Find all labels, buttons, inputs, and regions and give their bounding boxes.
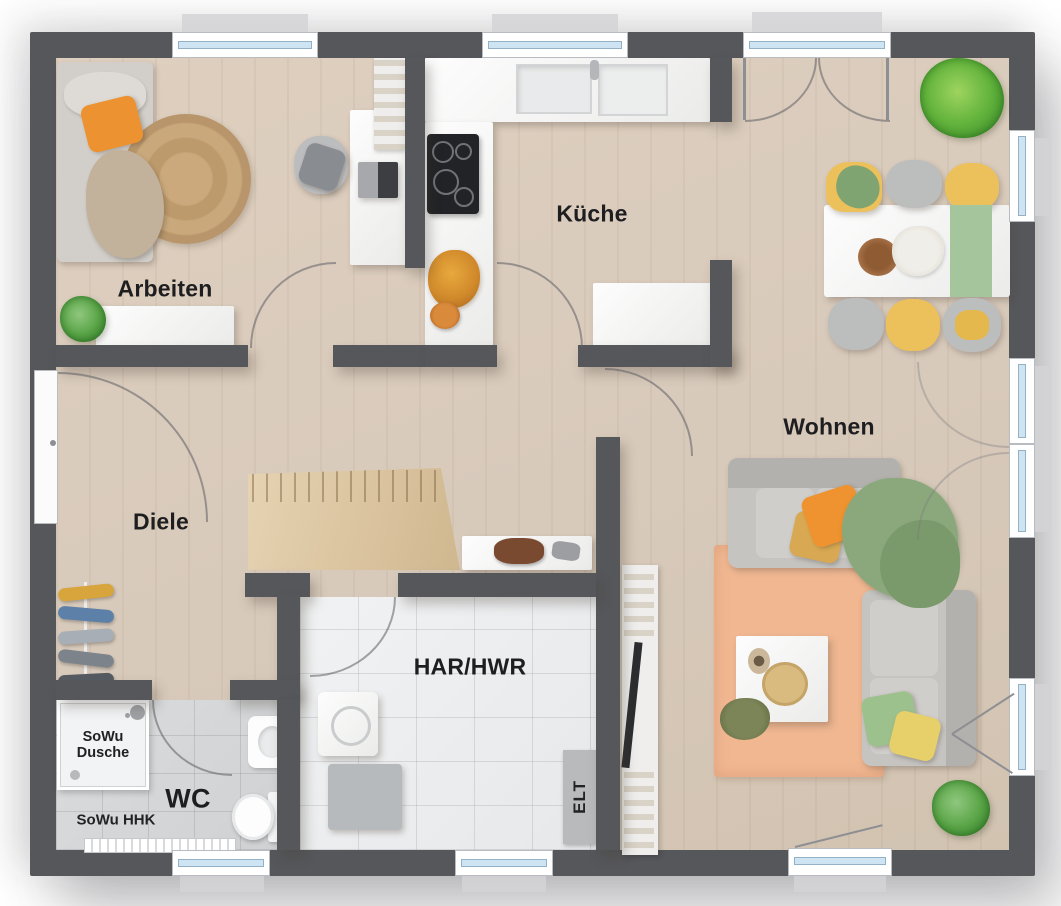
- toilet-bowl: [232, 794, 274, 840]
- window-sill: [492, 14, 618, 32]
- stair-treads: [252, 470, 450, 502]
- dining-chair: [886, 160, 942, 208]
- elt-label: ELT: [570, 780, 590, 814]
- wall: [405, 58, 425, 268]
- burner: [455, 143, 472, 160]
- wall: [56, 680, 152, 700]
- books-stack: [624, 570, 654, 636]
- appliance-box: [328, 764, 402, 830]
- wall: [578, 345, 732, 367]
- shower-drain: [70, 770, 80, 780]
- palm-plant: [920, 58, 1004, 138]
- terrace-door: [788, 848, 892, 876]
- shower-head: [130, 705, 145, 720]
- room-label-diele: Diele: [133, 509, 189, 536]
- room-label-har-hwr: HAR/HWR: [414, 654, 527, 681]
- candle: [748, 648, 770, 674]
- fruit-bowl: [430, 302, 460, 329]
- window: [172, 32, 318, 58]
- burner: [454, 187, 474, 207]
- potted-plant: [60, 296, 106, 342]
- front-door: [34, 370, 58, 524]
- window-sill: [462, 876, 546, 892]
- wall: [277, 700, 300, 850]
- window-sill: [180, 876, 264, 892]
- washing-machine-door: [331, 706, 371, 746]
- burner: [432, 141, 454, 163]
- wall: [425, 345, 497, 367]
- staircase: [248, 468, 460, 570]
- dining-chair: [945, 163, 999, 211]
- bag: [494, 538, 544, 564]
- chair-seat-cushion: [955, 310, 989, 340]
- wall: [333, 345, 425, 367]
- faucet: [590, 60, 599, 80]
- french-door-threshold: [743, 32, 891, 58]
- wall: [398, 573, 596, 597]
- wall: [245, 573, 310, 597]
- room-label-wohnen: Wohnen: [783, 414, 874, 441]
- window-sill: [1035, 366, 1049, 532]
- room-label-wc: WC: [165, 784, 210, 815]
- room-label-arbeiten: Arbeiten: [118, 276, 213, 303]
- sideboard: [96, 306, 234, 346]
- sink-basin: [598, 64, 668, 116]
- wall: [230, 680, 300, 700]
- window-sill: [182, 14, 308, 32]
- cooktop: [427, 134, 479, 214]
- sowu-dusche-label-line1: SoWu: [83, 729, 124, 745]
- window: [455, 850, 553, 876]
- wall: [56, 345, 248, 367]
- wall: [710, 58, 732, 122]
- door-handle: [50, 440, 56, 446]
- sowu-dusche-label-line2: Dusche: [77, 745, 129, 761]
- window: [1009, 130, 1035, 222]
- window-sill: [794, 876, 886, 892]
- sowu-hhk-label: SoWu HHK: [77, 812, 156, 829]
- table-runner: [950, 205, 992, 297]
- sofa-cushion: [870, 600, 938, 676]
- window: [1009, 358, 1035, 444]
- window: [1009, 444, 1035, 538]
- kitchen-peninsula: [593, 283, 715, 347]
- wall: [596, 437, 620, 850]
- window-sill: [1035, 684, 1049, 770]
- small-plant: [932, 780, 990, 836]
- room-label-kueche: Küche: [556, 201, 627, 228]
- laptop: [358, 162, 398, 198]
- window-sill: [752, 12, 882, 32]
- books-stack: [624, 768, 654, 848]
- window-sill: [1035, 138, 1049, 216]
- elt-panel: ELT: [563, 750, 596, 844]
- wall: [710, 260, 732, 367]
- sink-basin: [516, 64, 592, 114]
- window: [482, 32, 628, 58]
- dining-chair: [828, 298, 884, 350]
- decor-tray: [762, 662, 808, 706]
- floor-plan: SoWu Dusche ELT: [0, 0, 1061, 906]
- dining-chair: [886, 299, 940, 351]
- window: [172, 850, 270, 876]
- bookshelf: [374, 58, 405, 150]
